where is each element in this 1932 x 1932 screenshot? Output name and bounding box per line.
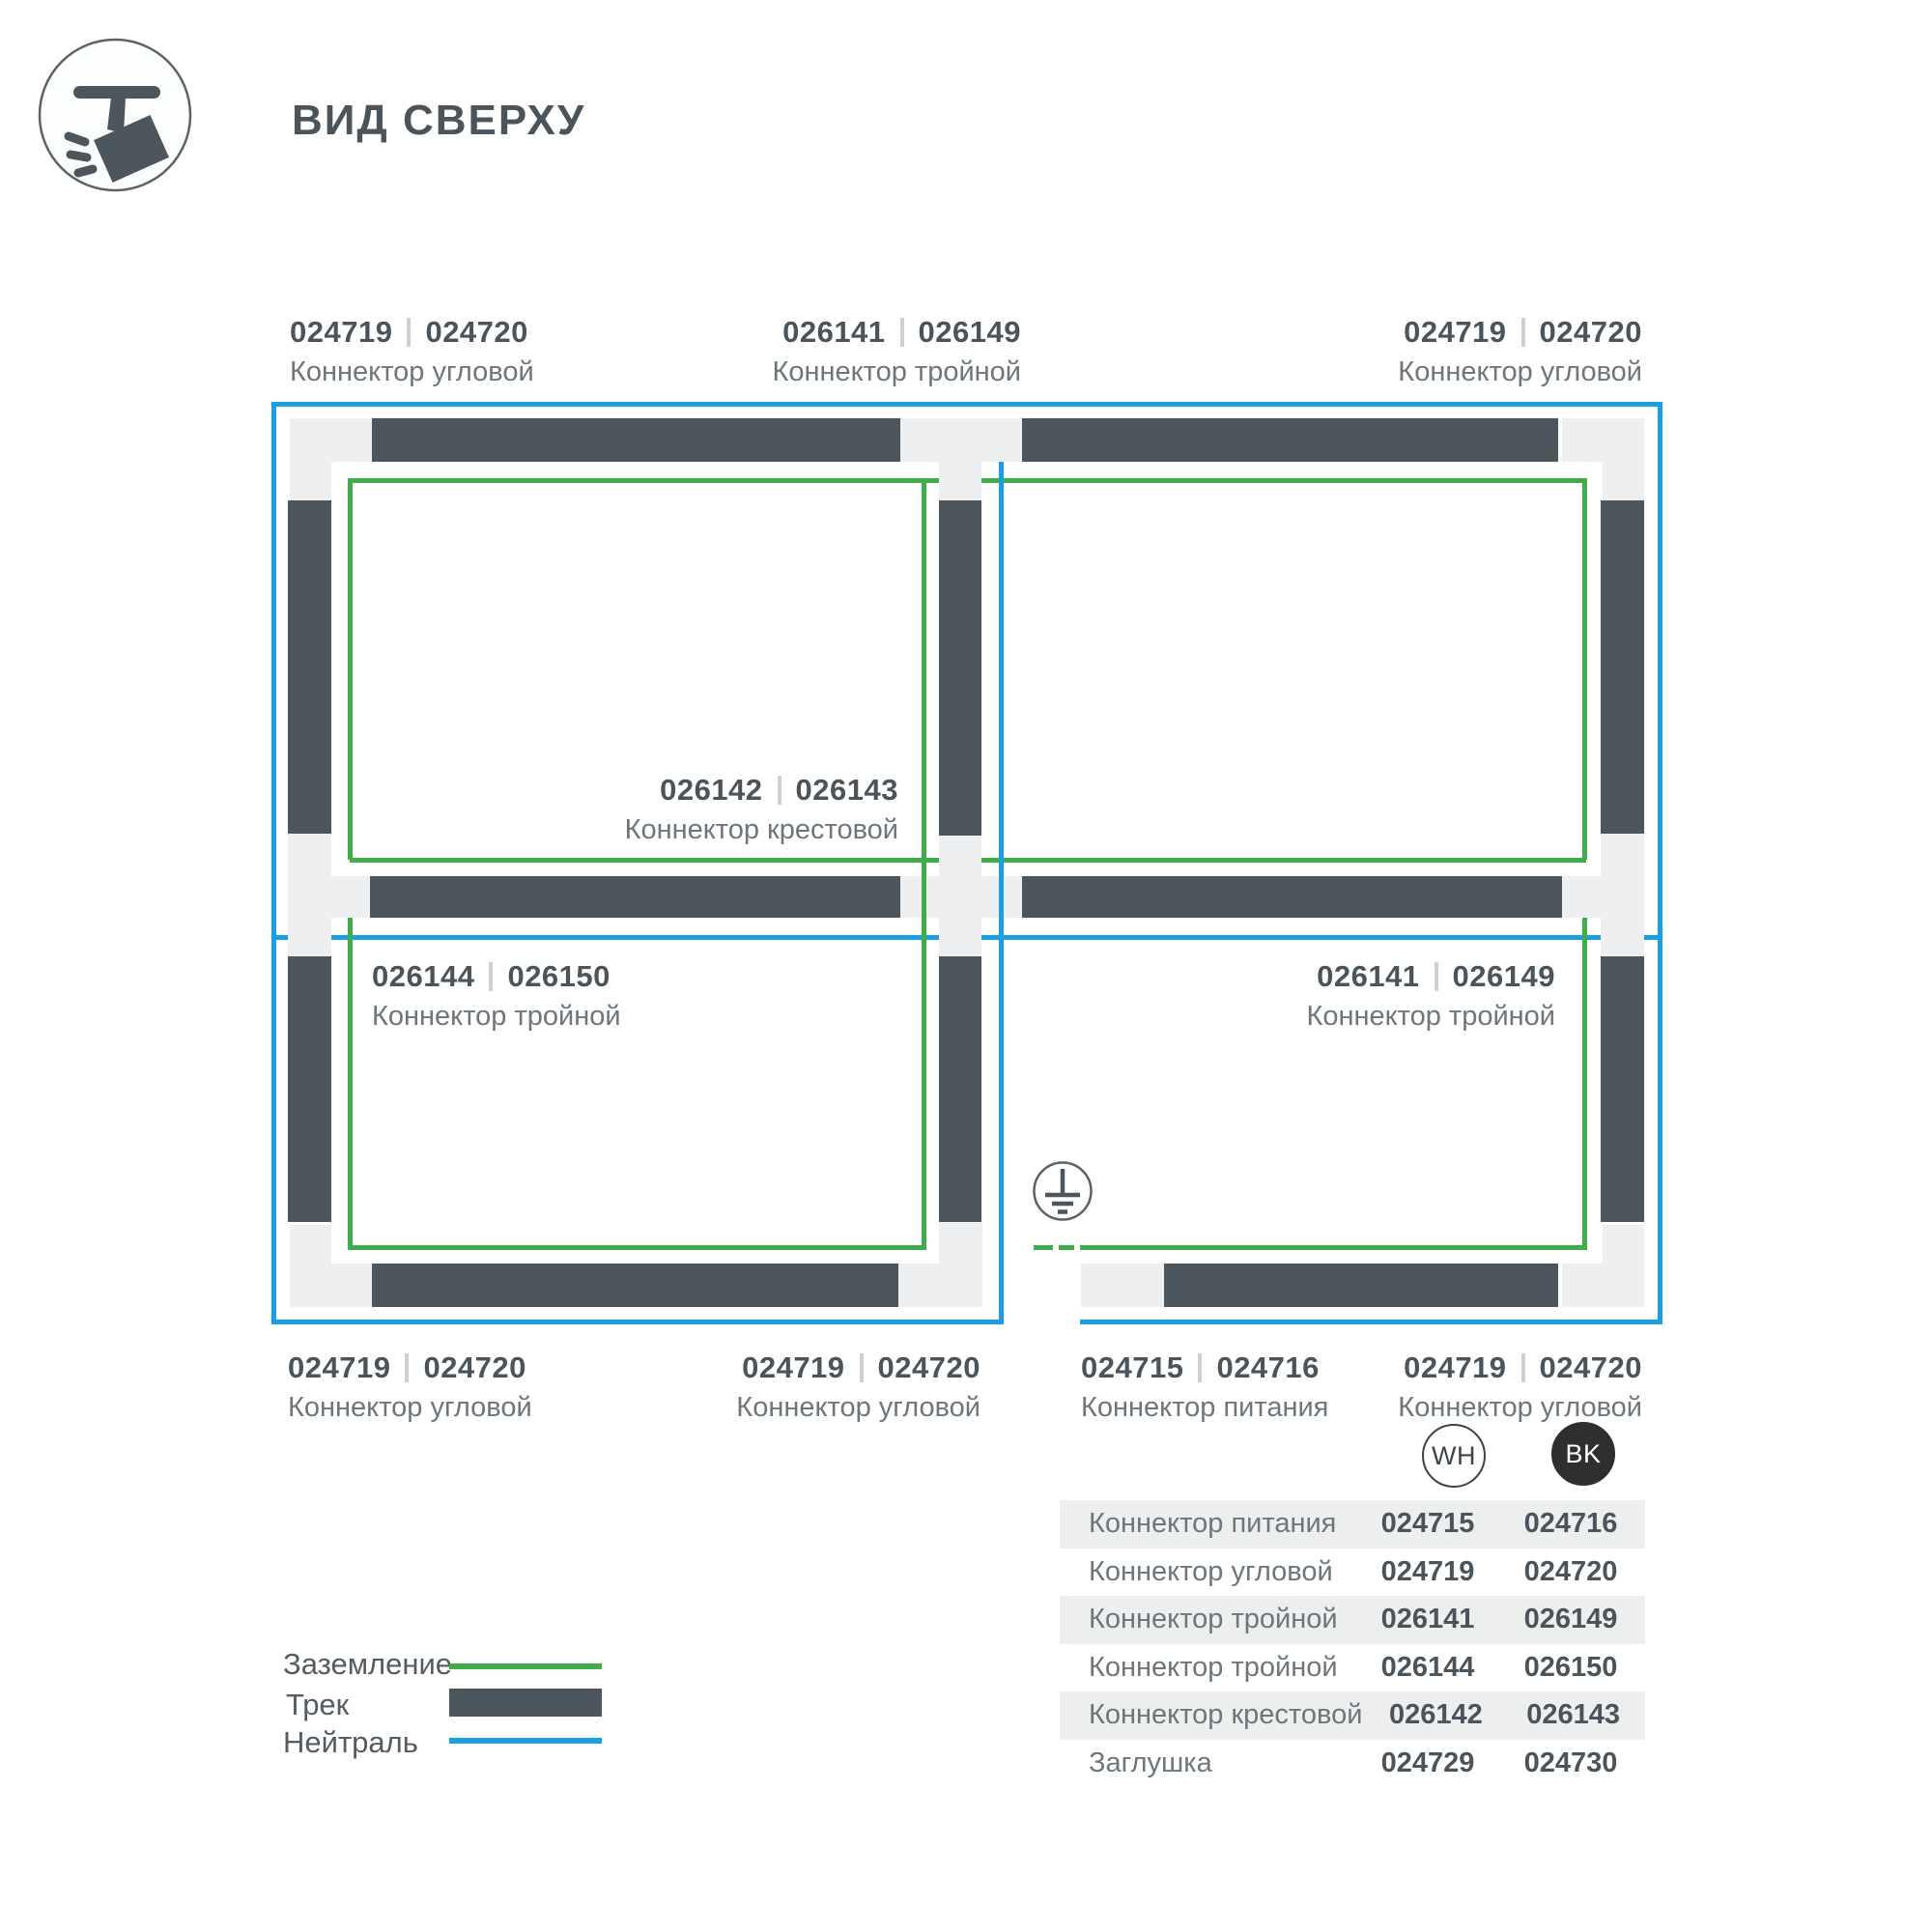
separator: [405, 1353, 409, 1382]
part-number-bk: 026150: [1504, 1652, 1645, 1684]
separator: [778, 776, 781, 805]
track-segment: [288, 500, 331, 834]
track-segment: [370, 876, 900, 918]
part-number-bk: 024730: [1504, 1747, 1645, 1779]
connector-name: Коннектор угловой: [736, 1392, 980, 1424]
article-number: 024720: [1540, 1350, 1642, 1385]
table-row: Коннектор угловой 024719 024720: [1060, 1548, 1645, 1597]
t-connector-left: [288, 834, 331, 956]
part-number-wh: 024729: [1351, 1747, 1504, 1779]
article-number: 024719: [1404, 1350, 1506, 1385]
callout-corner-top-left: 024719024720 Коннектор угловой: [290, 315, 534, 388]
track-segment: [939, 500, 981, 836]
separator: [860, 1353, 864, 1382]
ground-line: [1080, 1245, 1587, 1250]
table-row: Коннектор тройной 026144 026150: [1060, 1644, 1645, 1692]
track-segment: [1164, 1264, 1558, 1307]
t-connector-right: [1562, 876, 1601, 918]
callout-corner-bottom-right: 024719024720 Коннектор угловой: [1398, 1350, 1642, 1424]
table-row: Коннектор тройной 026141 026149: [1060, 1596, 1645, 1644]
article-number: 024716: [1216, 1350, 1319, 1385]
corner-connector-bottom-right: [1562, 1264, 1644, 1307]
article-number: 024719: [1404, 315, 1506, 350]
part-name: Коннектор угловой: [1060, 1556, 1351, 1588]
table-row: Коннектор крестовой 026142 026143: [1060, 1691, 1645, 1740]
callout-t-left: 026144026150 Коннектор тройной: [372, 959, 621, 1033]
callout-cross-center: 026142026143 Коннектор крестовой: [625, 773, 898, 846]
callout-corner-bottom-left: 024719024720 Коннектор угловой: [288, 1350, 532, 1424]
part-name: Коннектор питания: [1060, 1508, 1351, 1540]
power-connector: [1081, 1264, 1164, 1307]
legend-neutral-swatch: [449, 1738, 602, 1744]
track-segment: [288, 956, 331, 1222]
part-name: Заглушка: [1060, 1747, 1351, 1779]
separator: [407, 318, 411, 347]
page: ВИД СВЕРХУ: [0, 0, 1932, 1932]
article-number: 024719: [742, 1350, 844, 1385]
t-connector-left: [331, 876, 370, 918]
track-segment: [1022, 418, 1558, 462]
article-number: 026150: [507, 959, 610, 994]
part-number-wh: 026144: [1351, 1652, 1504, 1684]
t-connector-top: [939, 462, 981, 500]
article-number: 024719: [290, 315, 392, 350]
article-number: 024715: [1081, 1350, 1183, 1385]
part-number-wh: 024715: [1351, 1508, 1504, 1540]
article-number: 024720: [425, 315, 527, 350]
part-number-bk: 026149: [1504, 1604, 1645, 1635]
part-number-bk: 024720: [1504, 1556, 1645, 1588]
ground-line: [348, 1245, 925, 1250]
connector-name: Коннектор угловой: [1398, 1392, 1642, 1424]
ground-line: [348, 478, 353, 861]
connector-name: Коннектор тройной: [372, 1001, 621, 1033]
track-segment: [1601, 956, 1644, 1222]
article-number: 024720: [1540, 315, 1642, 350]
article-number: 026141: [782, 315, 885, 350]
callout-t-right: 026141026149 Коннектор тройной: [1306, 959, 1555, 1033]
connector-name: Коннектор угловой: [290, 356, 534, 388]
ground-line: [1582, 478, 1587, 861]
corner-connector-bottom-right: [1603, 1225, 1644, 1264]
track-spotlight-icon: [37, 37, 193, 193]
corner-connector-top-right: [1603, 462, 1644, 500]
legend-label-ground: Заземление: [283, 1647, 452, 1682]
track-segment: [372, 1264, 898, 1307]
neutral-line: [1658, 402, 1662, 1324]
corner-connector-bottom-center: [898, 1264, 939, 1307]
article-number: 026144: [372, 959, 474, 994]
separator: [1198, 1353, 1202, 1382]
neutral-line: [271, 402, 276, 1324]
neutral-line: [271, 402, 1662, 407]
part-number-wh: 024719: [1351, 1556, 1504, 1588]
track-segment: [1601, 500, 1644, 834]
article-number: 026149: [919, 315, 1021, 350]
ground-line-dash: [1059, 1245, 1074, 1250]
article-number: 026142: [660, 773, 762, 808]
page-title: ВИД СВЕРХУ: [292, 97, 585, 145]
track-segment: [372, 418, 900, 462]
track-segment: [939, 956, 981, 1222]
badge-white: WH: [1422, 1424, 1486, 1488]
article-number: 026141: [1317, 959, 1419, 994]
part-number-wh: 026142: [1362, 1699, 1509, 1731]
neutral-line: [999, 462, 1004, 1324]
separator: [1435, 962, 1438, 991]
separator: [900, 318, 904, 347]
corner-connector-top-left: [290, 418, 372, 462]
cross-connector: [900, 876, 1022, 918]
callout-corner-top-right: 024719024720 Коннектор угловой: [1398, 315, 1642, 388]
separator: [1521, 1353, 1525, 1382]
connector-name: Коннектор тройной: [772, 356, 1021, 388]
callout-corner-bottom-center: 024719024720 Коннектор угловой: [736, 1350, 980, 1424]
corner-connector-top-left: [290, 462, 331, 500]
article-number: 024720: [878, 1350, 980, 1385]
connector-name: Коннектор угловой: [288, 1392, 532, 1424]
article-number: 024719: [288, 1350, 390, 1385]
article-number: 026149: [1453, 959, 1555, 994]
corner-connector-bottom-left: [290, 1264, 372, 1307]
parts-table: Коннектор питания 024715 024716 Коннекто…: [1060, 1500, 1645, 1787]
separator: [489, 962, 493, 991]
part-name: Коннектор тройной: [1060, 1604, 1351, 1635]
connector-name: Коннектор угловой: [1398, 356, 1642, 388]
legend-label-track: Трек: [286, 1688, 349, 1722]
part-name: Коннектор крестовой: [1060, 1699, 1362, 1731]
neutral-line: [1080, 1320, 1662, 1324]
connector-name: Коннектор питания: [1081, 1392, 1328, 1424]
neutral-line: [271, 1320, 1004, 1324]
part-number-wh: 026141: [1351, 1604, 1504, 1635]
legend-ground-swatch: [449, 1663, 602, 1669]
t-connector-top: [900, 418, 1022, 462]
earth-ground-icon: [1032, 1160, 1094, 1222]
ground-line: [1582, 918, 1587, 1250]
badge-black: BK: [1551, 1422, 1615, 1486]
track-segment: [1022, 876, 1562, 918]
legend-track-swatch: [449, 1689, 602, 1717]
callout-t-top: 026141026149 Коннектор тройной: [772, 315, 1021, 388]
part-number-bk: 026143: [1509, 1699, 1645, 1731]
ground-line-dash: [1034, 1245, 1053, 1250]
connector-name: Коннектор тройной: [1306, 1001, 1555, 1033]
article-number: 024720: [423, 1350, 526, 1385]
ground-line: [348, 918, 353, 1250]
corner-connector-top-right: [1562, 418, 1644, 462]
corner-connector-bottom-left: [290, 1225, 331, 1264]
table-row: Коннектор питания 024715 024716: [1060, 1500, 1645, 1548]
separator: [1521, 318, 1525, 347]
callout-power-connector: 024715024716 Коннектор питания: [1081, 1350, 1328, 1424]
table-row: Заглушка 024729 024730: [1060, 1740, 1645, 1788]
corner-connector-bottom-center: [939, 1222, 982, 1307]
t-connector-right: [1601, 834, 1644, 956]
part-number-bk: 024716: [1504, 1508, 1645, 1540]
connector-name: Коннектор крестовой: [625, 814, 898, 846]
legend-label-neutral: Нейтраль: [283, 1725, 418, 1760]
article-number: 026143: [796, 773, 898, 808]
part-name: Коннектор тройной: [1060, 1652, 1351, 1684]
ground-line: [922, 478, 926, 1250]
